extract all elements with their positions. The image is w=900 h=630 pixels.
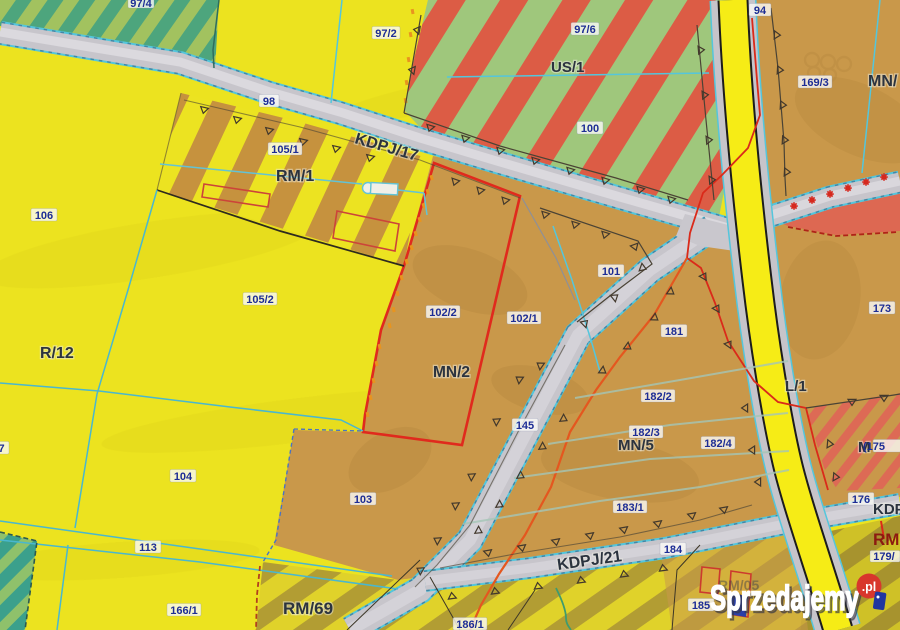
svg-text:94: 94 (754, 5, 767, 17)
svg-text:RM/69: RM/69 (283, 599, 333, 618)
svg-text:185: 185 (692, 600, 710, 612)
svg-text:Sprzedajemy: Sprzedajemy (710, 579, 859, 618)
svg-text:104: 104 (174, 471, 193, 483)
svg-text:L/1: L/1 (785, 378, 807, 395)
svg-text:145: 145 (516, 420, 534, 432)
svg-text:KDP: KDP (873, 501, 900, 518)
svg-text:113: 113 (139, 542, 157, 554)
svg-text:103: 103 (354, 494, 372, 506)
svg-text:100: 100 (581, 123, 599, 135)
svg-text:182/2: 182/2 (644, 391, 672, 403)
svg-text:98: 98 (263, 96, 275, 108)
svg-text:182/4: 182/4 (704, 438, 732, 450)
svg-text:97/6: 97/6 (574, 24, 595, 36)
svg-text:(175: (175 (863, 441, 885, 453)
svg-text:106: 106 (35, 210, 53, 222)
svg-text:176: 176 (852, 494, 870, 506)
svg-text:181: 181 (665, 326, 683, 338)
svg-text:.pl: .pl (862, 580, 877, 594)
svg-text:R/12: R/12 (40, 345, 74, 362)
svg-text:183/1: 183/1 (616, 502, 644, 514)
svg-text:97/2: 97/2 (375, 28, 396, 40)
svg-text:102/2: 102/2 (429, 307, 457, 319)
svg-text:MN/5: MN/5 (618, 437, 654, 454)
svg-text:MN/2: MN/2 (433, 364, 470, 381)
svg-text:173: 173 (873, 303, 891, 315)
svg-text:186/1: 186/1 (456, 619, 484, 630)
svg-text:105/1: 105/1 (271, 144, 299, 156)
svg-text:RM: RM (873, 530, 899, 549)
svg-text:102/1: 102/1 (510, 313, 538, 325)
svg-text:184: 184 (664, 544, 683, 556)
svg-text:101: 101 (602, 266, 620, 278)
svg-text:RM/1: RM/1 (276, 168, 314, 185)
svg-text:US/1: US/1 (551, 59, 584, 76)
svg-text:169/3: 169/3 (801, 77, 829, 89)
svg-text:MN/: MN/ (868, 73, 898, 90)
svg-text:105/2: 105/2 (246, 294, 274, 306)
svg-text:179/: 179/ (873, 551, 894, 563)
svg-text:166/1: 166/1 (170, 605, 198, 617)
svg-text:/7: /7 (0, 443, 5, 455)
svg-text:97/4: 97/4 (130, 0, 152, 10)
